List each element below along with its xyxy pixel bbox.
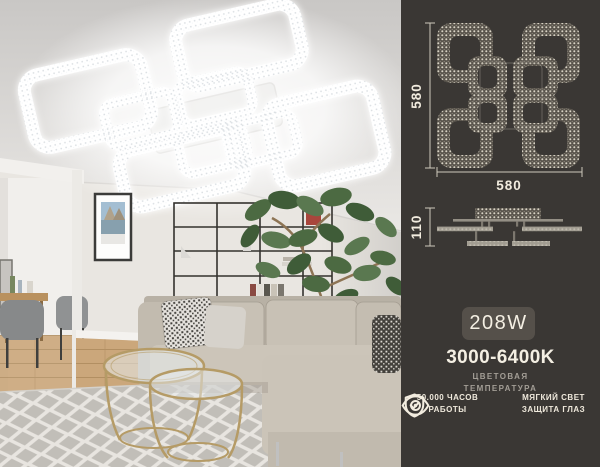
framed-picture [95,194,131,260]
feature-list: 50.000 ЧАСОВ РАБОТЫ МЯГКИЙ СВЕТ ЗАЩИТА Г… [401,392,600,417]
room-scene [0,0,401,467]
dining-chair [0,300,44,340]
large-rings [437,23,580,168]
feature-eye-line2: ЗАЩИТА ГЛАЗ [513,404,595,416]
height-dimension-lines [425,23,435,168]
chaise-front [268,432,401,467]
glass-top-small [150,369,242,399]
lifestyle-photo [0,0,401,467]
small-rings [468,56,558,133]
color-temp-value: 3000-6400K [401,347,600,369]
depth-dimension-label: 110 [409,215,424,240]
height-dimension-label: 580 [409,83,424,109]
chrome-leg [276,442,279,466]
eye-icon [401,392,430,419]
chair-leg [36,338,39,368]
top-view-diagram: 580 580 [401,6,600,194]
color-temp-caption-line1: ЦВЕТОВАЯ [401,371,600,383]
width-dimension-lines [437,167,582,177]
bottle [10,276,15,293]
chair-leg [6,338,9,368]
vase [27,281,33,293]
depth-dimension-lines [425,208,435,246]
dining-nook [0,158,88,400]
side-profile [437,208,582,246]
chrome-leg [340,452,343,467]
spec-panel: 580 580 [401,0,600,467]
feature-eye-protection-label: МЯГКИЙ СВЕТ ЗАЩИТА ГЛАЗ [513,392,595,417]
dark-patterned-pillow [372,315,401,373]
width-dimension-label: 580 [496,178,522,193]
dining-table [0,293,48,301]
side-view-diagram: 110 [401,196,600,258]
feature-eye-line1: МЯГКИЙ СВЕТ [513,392,595,404]
feature-eye-protection: МЯГКИЙ СВЕТ ЗАЩИТА ГЛАЗ [513,392,595,417]
power-badge: 208W [462,307,535,340]
gray-pillow [204,305,247,350]
chair-leg [60,328,62,360]
back-cushion [266,300,358,350]
product-card: 580 580 [0,0,600,467]
bottle [18,280,22,293]
